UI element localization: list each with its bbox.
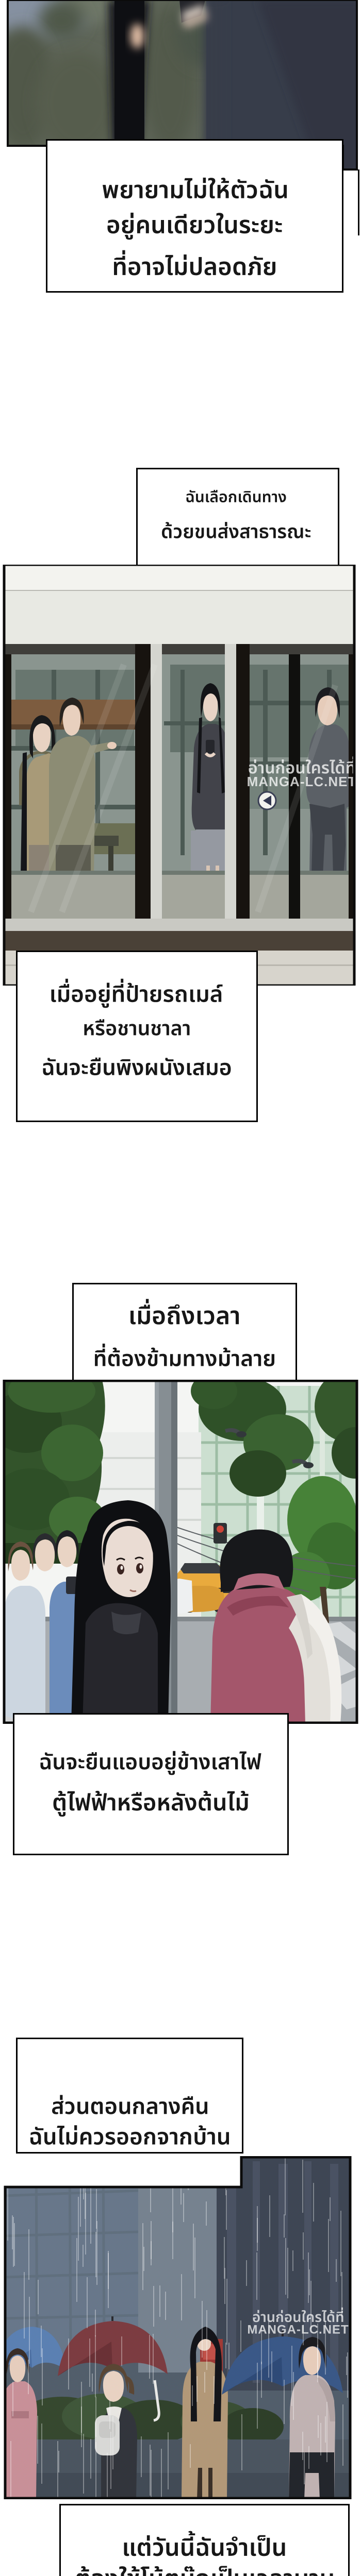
svg-text:MANGA-LC.NET: MANGA-LC.NET bbox=[247, 2323, 349, 2337]
svg-text:MANGA-LC.NET: MANGA-LC.NET bbox=[247, 774, 357, 789]
